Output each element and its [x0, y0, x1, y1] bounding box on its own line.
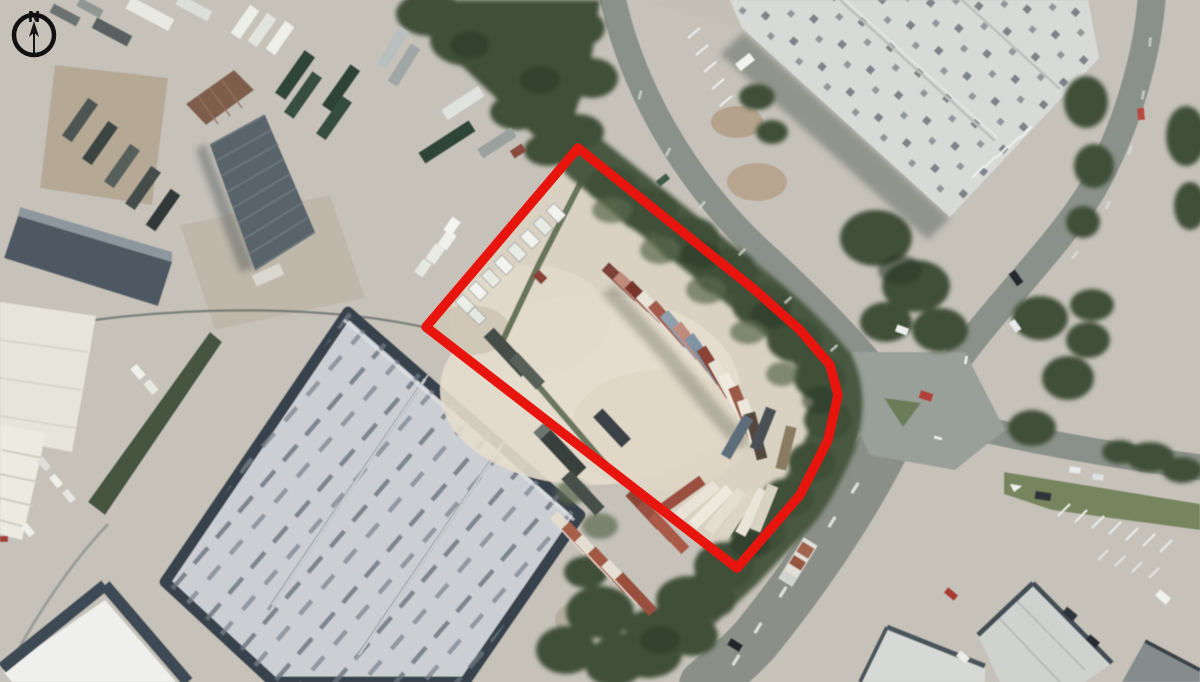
aerial-photograph: N — [0, 0, 1200, 682]
aerial-photo-stage: N — [0, 0, 1200, 682]
compass-label: N — [28, 8, 41, 26]
scene — [0, 0, 1200, 682]
